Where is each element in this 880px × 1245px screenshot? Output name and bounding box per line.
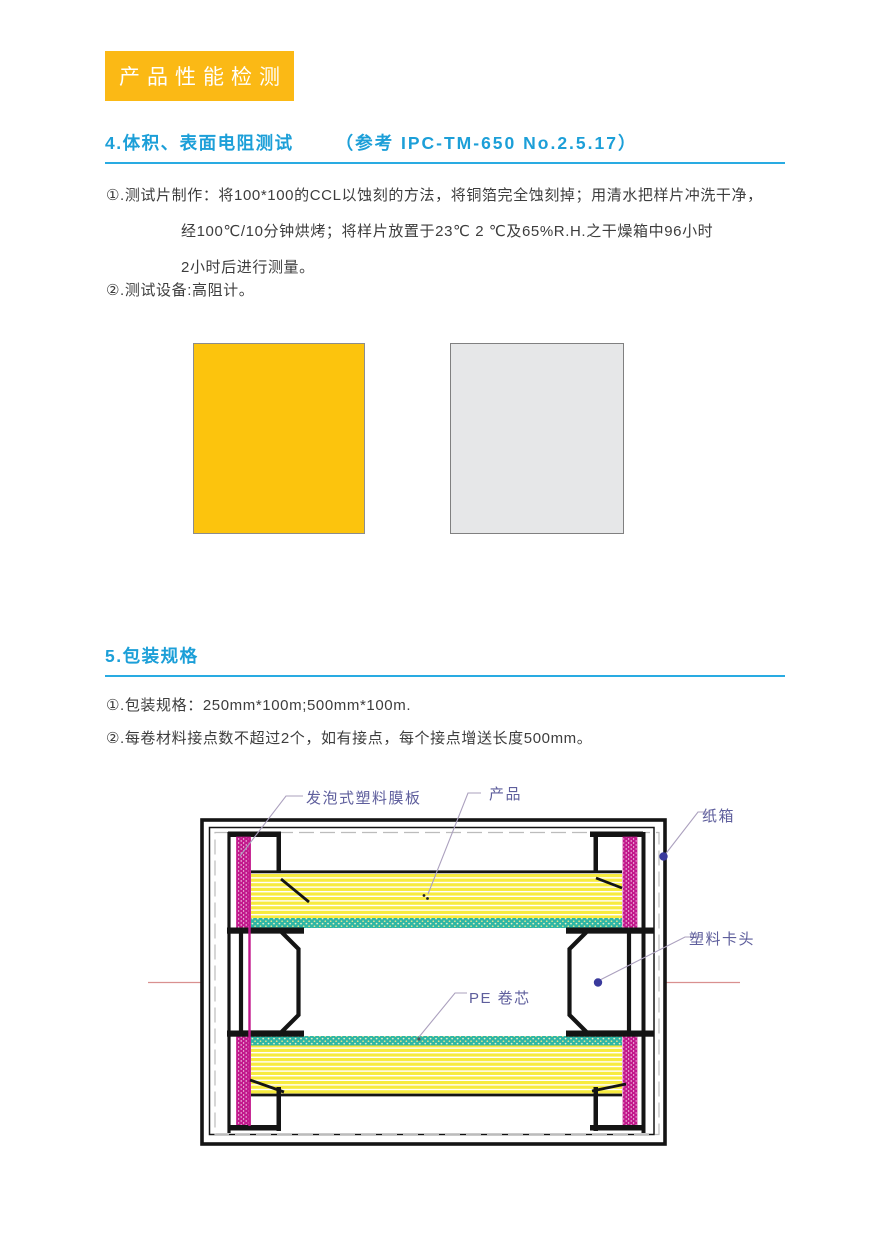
label-plastic-clip: 塑料卡头	[689, 928, 755, 949]
top-left-cap-bar	[228, 832, 281, 838]
section4-heading: 4.体积、表面电阻测试（参考 IPC-TM-650 No.2.5.17）	[105, 130, 785, 164]
bottom-right-cap-post	[594, 1087, 599, 1131]
pe-core-marker-dot	[417, 1037, 420, 1040]
page-title-badge: 产品性能检测	[105, 51, 294, 101]
label-foam-board: 发泡式塑料膜板	[306, 787, 422, 808]
bottom-left-cap-bar	[228, 1125, 281, 1131]
product-mark-dot1	[423, 894, 426, 897]
label-pe-core: PE 卷芯	[469, 987, 531, 1008]
pe-core-strip-bottom	[251, 1036, 622, 1046]
section5-heading: 5.包装规格	[105, 643, 785, 677]
label-carton: 纸箱	[702, 805, 735, 826]
carton-marker-dot	[659, 852, 667, 860]
section5-item2: ②.每卷材料接点数不超过2个，如有接点，每个接点增送长度500mm。	[106, 727, 592, 748]
section5-title: 5.包装规格	[105, 646, 199, 666]
product-mark-dot2	[426, 897, 429, 900]
document-page: 产品性能检测 4.体积、表面电阻测试（参考 IPC-TM-650 No.2.5.…	[0, 0, 880, 1245]
section4-item1-line3: 2小时后进行测量。	[181, 256, 315, 277]
top-left-cap-post	[277, 832, 282, 876]
pe-core-strip-top	[251, 918, 622, 928]
section4-title: 4.体积、表面电阻测试	[105, 133, 294, 153]
section5-item1: ①.包装规格：250mm*100m;500mm*100m.	[106, 694, 411, 715]
foam-board-bottom-right	[623, 1033, 637, 1127]
foam-board-top-right	[623, 837, 637, 931]
section4-item1-line1: ①.测试片制作：将100*100的CCL以蚀刻的方法，将铜箔完全蚀刻掉；用清水把…	[106, 184, 763, 205]
top-right-cap-post	[594, 832, 599, 876]
label-product: 产品	[489, 783, 522, 804]
page-title: 产品性能检测	[112, 61, 287, 91]
product-roll-bottom	[251, 1046, 622, 1095]
packaging-diagram	[130, 770, 770, 1165]
gray-sample-swatch	[450, 343, 624, 534]
yellow-sample-swatch	[193, 343, 365, 534]
bottom-left-cap-post	[277, 1087, 282, 1131]
section4-reference: （参考 IPC-TM-650 No.2.5.17）	[336, 133, 638, 153]
section4-item1-line2: 经100℃/10分钟烘烤；将样片放置于23℃ 2 ℃及65%R.H.之干燥箱中9…	[181, 220, 713, 241]
section4-item2: ②.测试设备:高阻计。	[106, 279, 254, 300]
product-roll-top	[251, 873, 622, 918]
clip-marker-dot	[594, 978, 602, 986]
